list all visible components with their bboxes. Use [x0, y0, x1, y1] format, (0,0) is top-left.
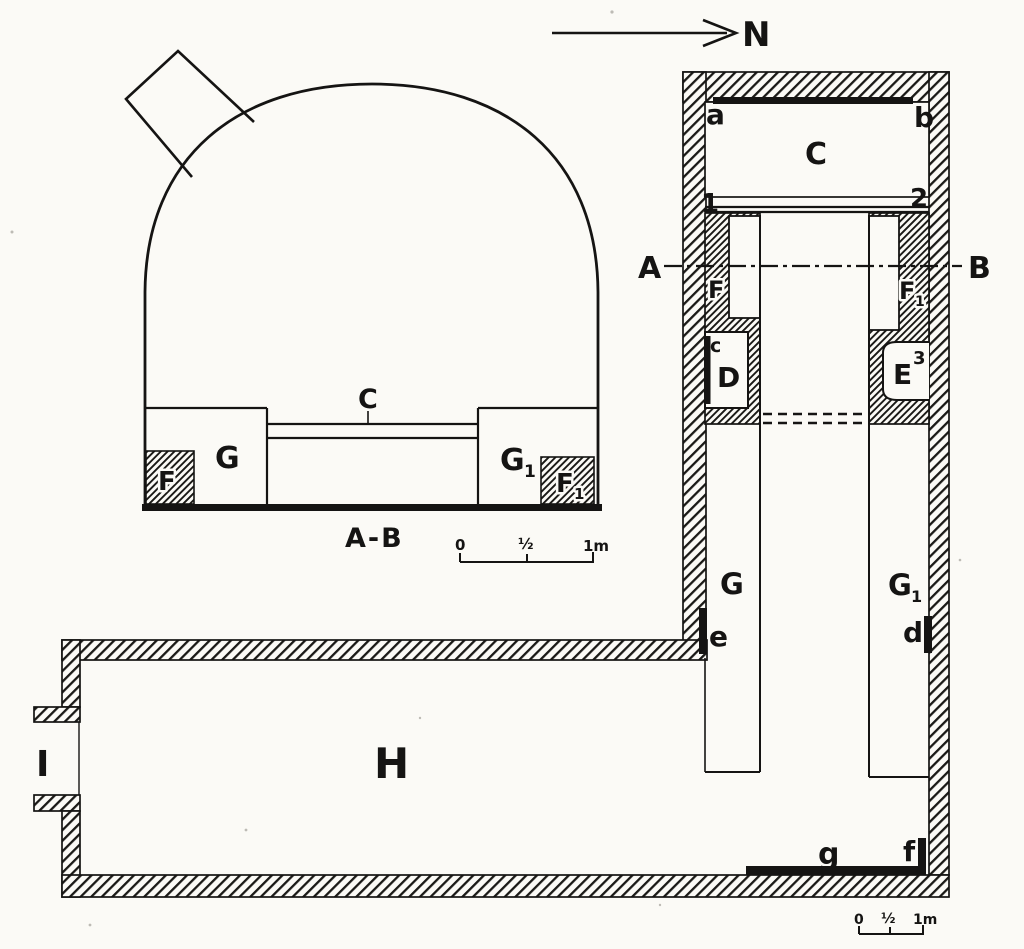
pilaster-right: [869, 216, 899, 330]
label-corridor-g1: G: [888, 568, 912, 602]
north-label: N: [742, 15, 770, 55]
label-bench-g: g: [818, 837, 839, 872]
label-block-f: F: [708, 276, 724, 304]
jamb-d-bar: [924, 616, 932, 653]
label-section-a: A: [638, 251, 662, 286]
jamb-e-bar: [699, 608, 707, 654]
label-room-h: H: [374, 739, 409, 788]
dome-outline: [145, 84, 598, 506]
label-niche-e-sup: 3: [913, 348, 926, 369]
label-block-f1: F: [899, 277, 915, 305]
scale1-one: 1m: [583, 537, 609, 555]
label-jamb-f: f: [903, 835, 916, 868]
room-h-north-wall: [62, 640, 707, 660]
label-corridor-g: G: [720, 567, 744, 601]
label-room-c: C: [805, 137, 827, 172]
plan-scale-bar: 0 ½ 1m: [854, 911, 937, 934]
scale2-zero: 0: [854, 912, 864, 928]
label-niche-d: D: [717, 361, 740, 394]
wall-east: [929, 72, 949, 875]
section-pit-right-sub: 1: [574, 485, 584, 503]
scanned-drawing-page: N C G G 1 F F 1 A-B 0 ½ 1m: [0, 0, 1024, 949]
drawing-canvas: N C G G 1 F F 1 A-B 0 ½ 1m: [0, 0, 1024, 949]
scale1-half: ½: [518, 535, 534, 553]
section-bench-left-label: G: [215, 441, 240, 476]
label-corridor-g1-sub: 1: [911, 587, 922, 606]
section-scale-bar: 0 ½ 1m: [455, 535, 609, 562]
wall-west: [683, 72, 706, 658]
section-baseline: [142, 504, 602, 511]
door-i-jamb-bottom: [34, 795, 80, 811]
scale2-one: 1m: [913, 912, 937, 928]
label-2: 2: [910, 184, 928, 214]
label-block-f1-sub: 1: [915, 294, 925, 310]
label-jamb-d: d: [903, 616, 923, 649]
section-caption: A-B: [345, 523, 404, 554]
label-1: 1: [701, 189, 719, 219]
scale2-half: ½: [881, 911, 896, 927]
room-h-south-wall: [62, 875, 949, 897]
section-bench-right-sub: 1: [524, 462, 536, 482]
label-jamb-e: e: [709, 620, 728, 653]
room-h-west-wall-upper: [62, 640, 80, 707]
section-shelf-label: C: [358, 384, 378, 415]
door-i-jamb-top: [34, 707, 80, 722]
section-view: C G G 1 F F 1 A-B 0 ½ 1m: [126, 51, 609, 562]
label-door-i: I: [36, 744, 49, 785]
section-pit-left-label: F: [158, 467, 176, 497]
label-section-b: B: [968, 251, 991, 286]
label-niche-e: E: [893, 358, 912, 391]
label-a: a: [706, 98, 725, 131]
section-pit-right-label: F: [556, 469, 574, 499]
north-arrow: N: [552, 15, 770, 55]
section-bench-right-label: G: [500, 443, 525, 478]
scale1-zero: 0: [455, 536, 465, 554]
room-c-lintel-bar: [713, 97, 913, 104]
label-b: b: [914, 101, 934, 134]
label-niche-c: c: [710, 335, 721, 357]
